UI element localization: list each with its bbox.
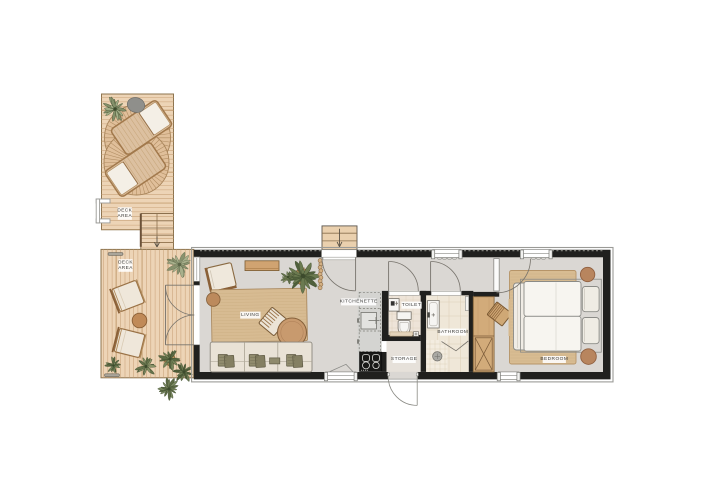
svg-text:AREA: AREA xyxy=(118,265,133,270)
svg-text:STORAGE: STORAGE xyxy=(391,356,418,362)
svg-text:BEDROOM: BEDROOM xyxy=(540,356,568,362)
svg-text:AREA: AREA xyxy=(118,213,133,218)
svg-text:TOILET: TOILET xyxy=(402,302,421,308)
svg-text:DECK: DECK xyxy=(118,259,133,264)
svg-text:KITCHENETTE: KITCHENETTE xyxy=(340,299,378,305)
svg-text:BATHROOM: BATHROOM xyxy=(437,329,468,335)
svg-text:LIVING: LIVING xyxy=(241,312,259,318)
svg-text:DECK: DECK xyxy=(117,207,132,212)
